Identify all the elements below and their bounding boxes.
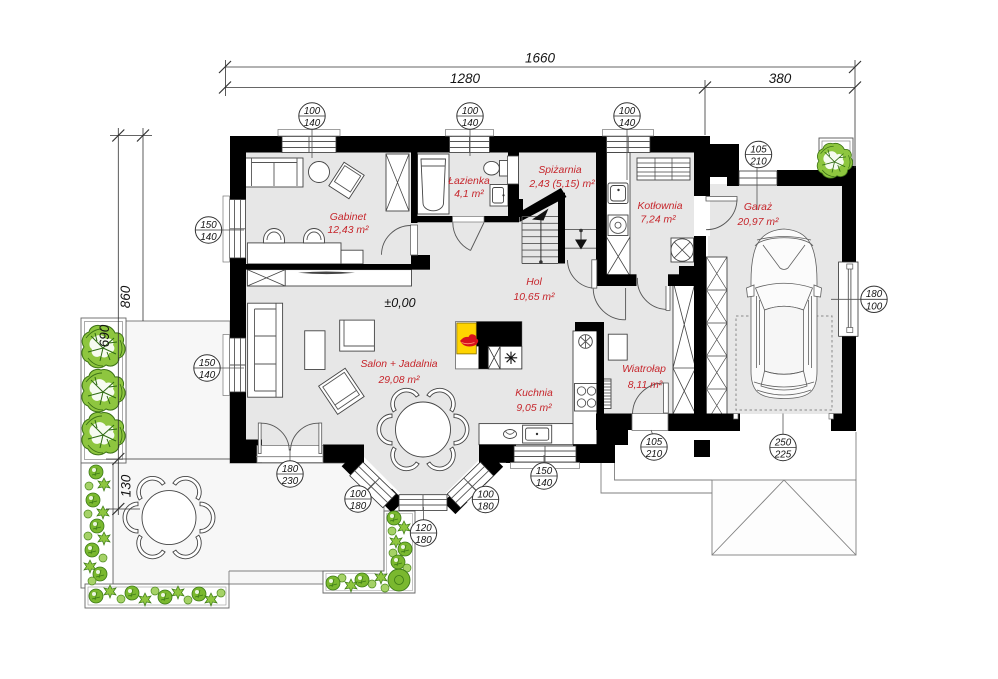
svg-text:230: 230 — [281, 476, 299, 487]
svg-text:100: 100 — [350, 489, 367, 500]
svg-text:10,65 m²: 10,65 m² — [513, 292, 555, 303]
svg-text:150: 150 — [536, 466, 553, 477]
svg-text:105: 105 — [646, 437, 663, 448]
svg-text:100: 100 — [477, 489, 494, 500]
svg-text:7,24 m²: 7,24 m² — [640, 215, 676, 226]
svg-text:Spiżarnia: Spiżarnia — [538, 165, 582, 176]
svg-text:9,05 m²: 9,05 m² — [516, 403, 552, 414]
svg-text:Hol: Hol — [526, 277, 542, 288]
svg-text:1660: 1660 — [525, 51, 556, 66]
svg-text:860: 860 — [118, 285, 133, 308]
svg-text:105: 105 — [750, 144, 767, 155]
svg-text:100: 100 — [462, 106, 479, 117]
svg-text:210: 210 — [749, 157, 767, 168]
svg-text:2,43 (5,15) m²: 2,43 (5,15) m² — [528, 179, 595, 190]
svg-text:8,11 m²: 8,11 m² — [628, 380, 663, 391]
svg-text:100: 100 — [304, 106, 321, 117]
svg-text:140: 140 — [200, 232, 217, 243]
svg-text:180: 180 — [866, 289, 883, 300]
svg-text:±0,00: ±0,00 — [384, 296, 415, 310]
svg-text:130: 130 — [119, 474, 134, 497]
svg-text:Kotłownia: Kotłownia — [637, 201, 682, 212]
svg-text:690: 690 — [97, 324, 112, 347]
svg-text:210: 210 — [645, 449, 663, 460]
svg-text:Łazienka: Łazienka — [448, 176, 490, 187]
svg-text:4,1 m²: 4,1 m² — [454, 189, 484, 200]
svg-text:Wiatrołap: Wiatrołap — [622, 364, 666, 375]
svg-text:120: 120 — [415, 523, 432, 534]
svg-text:140: 140 — [462, 118, 479, 129]
svg-text:180: 180 — [477, 502, 494, 513]
svg-text:Gabinet: Gabinet — [330, 212, 368, 223]
svg-text:180: 180 — [415, 535, 432, 546]
svg-text:100: 100 — [619, 106, 636, 117]
svg-text:140: 140 — [536, 478, 553, 489]
svg-text:225: 225 — [774, 450, 792, 461]
svg-text:250: 250 — [774, 437, 792, 448]
svg-text:100: 100 — [866, 301, 883, 312]
svg-text:180: 180 — [350, 501, 367, 512]
svg-text:Garaż: Garaż — [744, 202, 773, 213]
svg-text:150: 150 — [200, 220, 217, 231]
svg-text:Salon + Jadalnia: Salon + Jadalnia — [360, 359, 437, 370]
svg-text:140: 140 — [619, 118, 636, 129]
svg-text:140: 140 — [199, 370, 216, 381]
svg-text:380: 380 — [769, 71, 792, 86]
svg-text:140: 140 — [304, 118, 321, 129]
svg-text:180: 180 — [282, 464, 299, 475]
svg-text:1280: 1280 — [450, 71, 481, 86]
svg-text:29,08 m²: 29,08 m² — [377, 375, 420, 386]
svg-text:20,97 m²: 20,97 m² — [736, 217, 779, 228]
svg-text:12,43 m²: 12,43 m² — [327, 225, 369, 236]
svg-text:150: 150 — [199, 358, 216, 369]
svg-text:Kuchnia: Kuchnia — [515, 388, 553, 399]
